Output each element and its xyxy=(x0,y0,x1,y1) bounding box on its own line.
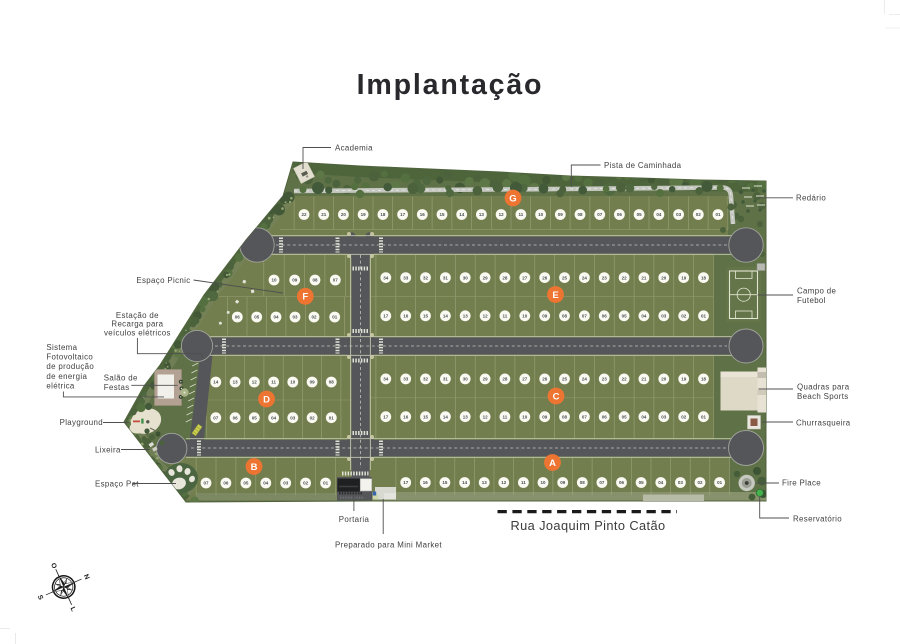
svg-text:02: 02 xyxy=(697,480,703,485)
svg-text:elétrica: elétrica xyxy=(46,382,74,391)
svg-text:04: 04 xyxy=(641,414,647,419)
svg-text:14: 14 xyxy=(459,212,465,217)
svg-text:18: 18 xyxy=(701,377,707,382)
svg-text:12: 12 xyxy=(483,414,489,419)
svg-text:23: 23 xyxy=(602,377,608,382)
svg-text:09: 09 xyxy=(542,414,548,419)
svg-text:05: 05 xyxy=(637,212,643,217)
svg-text:02: 02 xyxy=(681,414,687,419)
svg-text:Salão de: Salão de xyxy=(104,374,138,383)
svg-text:E: E xyxy=(552,290,558,301)
svg-text:06: 06 xyxy=(233,415,239,420)
svg-text:19: 19 xyxy=(681,377,687,382)
svg-text:05: 05 xyxy=(622,314,628,319)
svg-text:de produção: de produção xyxy=(46,362,94,371)
svg-text:14: 14 xyxy=(443,414,449,419)
svg-text:20: 20 xyxy=(661,377,667,382)
svg-text:26: 26 xyxy=(542,275,548,280)
svg-text:Pista de Caminhada: Pista de Caminhada xyxy=(604,161,682,170)
svg-text:03: 03 xyxy=(292,315,298,320)
svg-text:Beach Sports: Beach Sports xyxy=(797,392,849,401)
svg-text:11: 11 xyxy=(503,314,508,319)
svg-text:02: 02 xyxy=(303,481,309,486)
svg-text:03: 03 xyxy=(661,414,667,419)
svg-text:08: 08 xyxy=(562,414,568,419)
svg-text:04: 04 xyxy=(273,315,279,320)
svg-text:Lixeira: Lixeira xyxy=(95,445,121,454)
svg-text:18: 18 xyxy=(701,275,707,280)
svg-text:Futebol: Futebol xyxy=(797,296,826,305)
svg-text:21: 21 xyxy=(641,275,647,280)
svg-text:03: 03 xyxy=(661,314,667,319)
svg-text:14: 14 xyxy=(462,480,468,485)
svg-text:32: 32 xyxy=(423,275,429,280)
svg-text:Rua Joaquim Pinto Catão: Rua Joaquim Pinto Catão xyxy=(510,518,665,533)
svg-text:06: 06 xyxy=(602,414,608,419)
svg-text:21: 21 xyxy=(641,377,647,382)
svg-text:10: 10 xyxy=(540,480,546,485)
svg-text:10: 10 xyxy=(271,278,277,283)
svg-text:05: 05 xyxy=(639,480,645,485)
svg-text:10: 10 xyxy=(290,380,296,385)
svg-text:33: 33 xyxy=(403,377,409,382)
svg-text:Churrasqueira: Churrasqueira xyxy=(796,418,851,427)
svg-text:22: 22 xyxy=(622,275,628,280)
svg-text:A: A xyxy=(549,458,556,469)
svg-text:Playground: Playground xyxy=(60,418,103,427)
svg-text:01: 01 xyxy=(329,415,335,420)
svg-text:28: 28 xyxy=(502,377,508,382)
svg-text:06: 06 xyxy=(619,480,625,485)
svg-text:25: 25 xyxy=(562,377,568,382)
svg-text:12: 12 xyxy=(499,212,505,217)
svg-text:01: 01 xyxy=(332,315,338,320)
svg-text:07: 07 xyxy=(213,415,219,420)
svg-text:Espaço Picnic: Espaço Picnic xyxy=(136,276,190,285)
svg-text:11: 11 xyxy=(519,212,524,217)
svg-text:11: 11 xyxy=(521,480,526,485)
svg-text:24: 24 xyxy=(582,275,588,280)
svg-text:07: 07 xyxy=(597,212,603,217)
svg-text:09: 09 xyxy=(560,480,566,485)
svg-text:02: 02 xyxy=(310,415,316,420)
svg-text:31: 31 xyxy=(443,275,449,280)
svg-text:30: 30 xyxy=(463,275,469,280)
svg-text:16: 16 xyxy=(403,414,409,419)
svg-text:Festas: Festas xyxy=(104,383,130,392)
svg-text:C: C xyxy=(553,391,560,402)
svg-text:F: F xyxy=(302,292,308,303)
svg-text:12: 12 xyxy=(501,480,507,485)
svg-text:10: 10 xyxy=(538,212,544,217)
svg-text:02: 02 xyxy=(696,212,702,217)
svg-text:Quadras para: Quadras para xyxy=(797,383,850,392)
svg-text:07: 07 xyxy=(599,480,605,485)
svg-text:33: 33 xyxy=(403,275,409,280)
svg-text:Fire Place: Fire Place xyxy=(782,479,821,488)
svg-text:10: 10 xyxy=(522,314,528,319)
svg-text:G: G xyxy=(509,193,516,204)
svg-text:20: 20 xyxy=(661,275,667,280)
svg-text:29: 29 xyxy=(483,377,489,382)
svg-text:15: 15 xyxy=(439,212,445,217)
svg-text:07: 07 xyxy=(582,314,588,319)
svg-text:07: 07 xyxy=(333,278,339,283)
svg-text:15: 15 xyxy=(442,480,448,485)
svg-text:09: 09 xyxy=(310,380,316,385)
svg-text:29: 29 xyxy=(483,275,489,280)
svg-text:Redário: Redário xyxy=(796,194,826,203)
svg-text:13: 13 xyxy=(479,212,485,217)
svg-text:25: 25 xyxy=(562,275,568,280)
svg-text:12: 12 xyxy=(483,314,489,319)
svg-text:Campo de: Campo de xyxy=(797,286,836,295)
svg-text:14: 14 xyxy=(443,314,449,319)
svg-text:17: 17 xyxy=(383,414,389,419)
svg-text:Sistema: Sistema xyxy=(46,343,77,352)
svg-text:09: 09 xyxy=(558,212,564,217)
svg-text:23: 23 xyxy=(602,275,608,280)
svg-text:15: 15 xyxy=(423,314,429,319)
svg-text:09: 09 xyxy=(542,314,548,319)
svg-text:08: 08 xyxy=(562,314,568,319)
svg-text:20: 20 xyxy=(341,212,347,217)
svg-text:05: 05 xyxy=(254,315,260,320)
svg-text:17: 17 xyxy=(400,212,406,217)
svg-text:22: 22 xyxy=(622,377,628,382)
svg-text:02: 02 xyxy=(311,315,317,320)
svg-text:Implantação: Implantação xyxy=(357,69,544,101)
svg-text:28: 28 xyxy=(502,275,508,280)
svg-text:07: 07 xyxy=(582,414,588,419)
svg-text:22: 22 xyxy=(301,212,307,217)
svg-text:B: B xyxy=(251,462,258,473)
svg-text:07: 07 xyxy=(203,481,209,486)
svg-text:19: 19 xyxy=(361,212,367,217)
svg-text:Portaria: Portaria xyxy=(339,515,370,524)
svg-text:11: 11 xyxy=(503,414,508,419)
svg-text:21: 21 xyxy=(321,212,327,217)
svg-text:27: 27 xyxy=(522,377,528,382)
svg-text:04: 04 xyxy=(641,314,647,319)
svg-text:Reservatório: Reservatório xyxy=(793,514,842,523)
svg-text:01: 01 xyxy=(717,480,723,485)
svg-text:30: 30 xyxy=(463,377,469,382)
svg-text:05: 05 xyxy=(622,414,628,419)
svg-text:32: 32 xyxy=(423,377,429,382)
svg-text:16: 16 xyxy=(420,212,426,217)
svg-text:Espaço Pet: Espaço Pet xyxy=(95,479,139,488)
svg-text:08: 08 xyxy=(577,212,583,217)
svg-text:10: 10 xyxy=(522,414,528,419)
svg-text:04: 04 xyxy=(658,480,664,485)
svg-text:01: 01 xyxy=(715,212,721,217)
svg-text:08: 08 xyxy=(580,480,586,485)
svg-text:09: 09 xyxy=(292,278,298,283)
svg-text:06: 06 xyxy=(602,314,608,319)
svg-text:06: 06 xyxy=(235,315,241,320)
svg-text:01: 01 xyxy=(323,481,329,486)
svg-text:13: 13 xyxy=(463,414,469,419)
svg-text:03: 03 xyxy=(678,480,684,485)
svg-text:17: 17 xyxy=(383,314,389,319)
svg-text:03: 03 xyxy=(290,415,296,420)
svg-text:04: 04 xyxy=(263,481,269,486)
svg-text:Fotovoltaico: Fotovoltaico xyxy=(46,353,93,362)
svg-text:34: 34 xyxy=(383,275,389,280)
svg-text:Recarga para: Recarga para xyxy=(111,320,163,329)
svg-text:06: 06 xyxy=(617,212,623,217)
svg-text:Academia: Academia xyxy=(335,144,373,153)
svg-text:24: 24 xyxy=(582,377,588,382)
svg-text:08: 08 xyxy=(329,380,335,385)
svg-text:13: 13 xyxy=(463,314,469,319)
svg-text:01: 01 xyxy=(701,314,707,319)
svg-text:02: 02 xyxy=(681,314,687,319)
svg-text:19: 19 xyxy=(681,275,687,280)
svg-text:26: 26 xyxy=(542,377,548,382)
svg-text:03: 03 xyxy=(283,481,289,486)
svg-text:27: 27 xyxy=(522,275,528,280)
svg-text:31: 31 xyxy=(443,377,449,382)
svg-text:13: 13 xyxy=(482,480,488,485)
svg-text:06: 06 xyxy=(223,481,229,486)
svg-text:01: 01 xyxy=(701,414,707,419)
svg-text:03: 03 xyxy=(676,212,682,217)
svg-text:de energia: de energia xyxy=(46,372,87,381)
svg-text:15: 15 xyxy=(423,414,429,419)
svg-text:18: 18 xyxy=(380,212,386,217)
svg-text:11: 11 xyxy=(271,380,276,385)
svg-text:08: 08 xyxy=(312,278,318,283)
svg-text:14: 14 xyxy=(213,380,219,385)
svg-text:05: 05 xyxy=(252,415,258,420)
svg-text:34: 34 xyxy=(383,377,389,382)
svg-text:veículos elétricos: veículos elétricos xyxy=(104,328,171,337)
svg-text:12: 12 xyxy=(252,380,258,385)
svg-text:04: 04 xyxy=(271,415,277,420)
svg-text:Estação de: Estação de xyxy=(116,311,159,320)
svg-text:16: 16 xyxy=(403,314,409,319)
svg-text:D: D xyxy=(263,394,270,405)
svg-text:05: 05 xyxy=(243,481,249,486)
svg-text:16: 16 xyxy=(423,480,429,485)
svg-text:13: 13 xyxy=(233,380,239,385)
svg-text:17: 17 xyxy=(403,480,409,485)
svg-text:04: 04 xyxy=(656,212,662,217)
svg-text:Preparado para Mini Market: Preparado para Mini Market xyxy=(335,541,442,550)
